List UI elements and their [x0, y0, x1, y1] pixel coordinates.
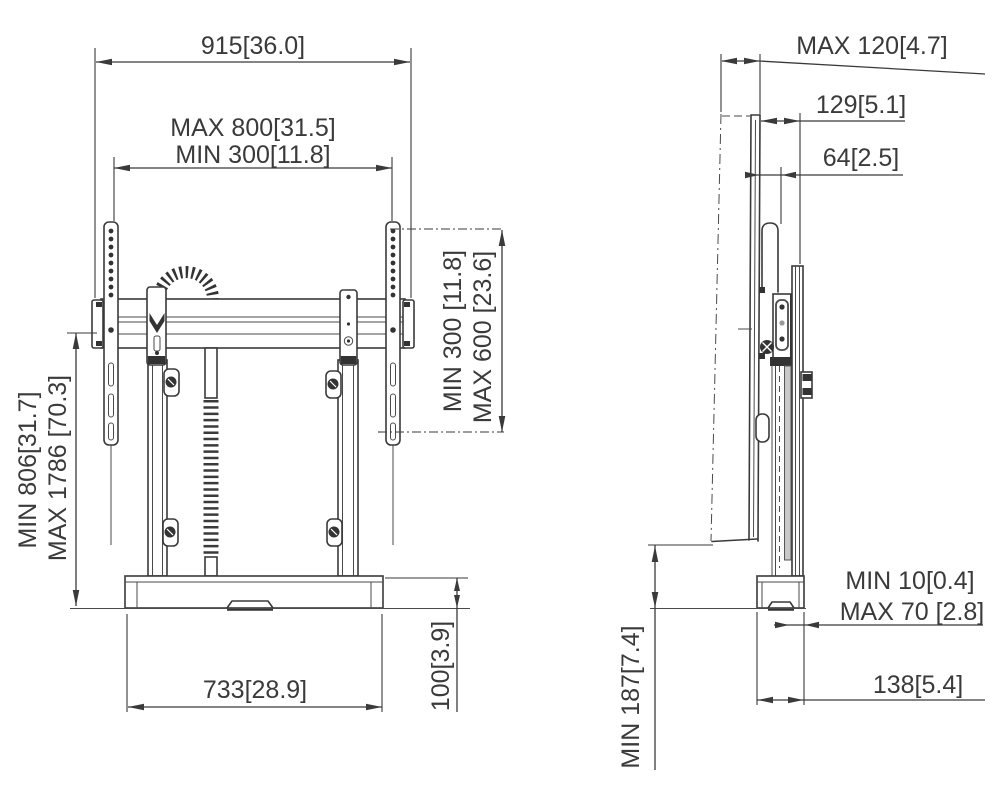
label-base-depth: 138[5.4] — [873, 671, 963, 699]
mount-tabs — [163, 369, 342, 546]
label-total-width: 915[36.0] — [201, 32, 305, 60]
cable-clamp — [801, 372, 812, 398]
label-wall-gap-max: MAX 70 [2.8] — [840, 598, 985, 626]
floor-base-side — [757, 576, 804, 609]
lift-spring — [205, 348, 217, 576]
vesa-rail-right — [386, 222, 400, 545]
coiled-cable — [159, 272, 213, 299]
side-view — [650, 114, 812, 609]
dim-vesa-width: MAX 800[31.5] MIN 300[11.8] — [114, 114, 392, 221]
dim-center-height: MIN 806[31.7] MAX 1786 [70.3] — [14, 333, 97, 606]
vesa-rail-left — [104, 222, 118, 545]
tv-tilted-outline — [711, 114, 721, 541]
drawing-page: 915[36.0] MAX 800[31.5] MIN 300[11.8] MI… — [0, 0, 1000, 800]
label-vesa-width-min: MIN 300[11.8] — [175, 141, 330, 169]
label-tilt-depth: MAX 120[4.7] — [796, 32, 947, 60]
floor-base — [125, 576, 383, 609]
dim-base-height: 100[3.9] — [385, 578, 468, 712]
dim-base-width: 733[28.9] — [127, 614, 382, 712]
dim-depth-64: 64[2.5] — [745, 144, 903, 224]
label-base-height: 100[3.9] — [427, 621, 455, 711]
dim-depth-129: 129[5.1] — [761, 91, 906, 264]
label-center-height-min: MIN 806[31.7] — [14, 391, 42, 548]
label-vesa-height-max: MAX 600 [23.6] — [469, 251, 497, 423]
technical-drawing: 915[36.0] MAX 800[31.5] MIN 300[11.8] MI… — [0, 0, 1000, 800]
label-vesa-height-min: MIN 300 [11.8] — [439, 250, 467, 412]
label-center-height-max: MAX 1786 [70.3] — [44, 375, 72, 561]
label-depth-64: 64[2.5] — [823, 144, 899, 172]
label-vesa-width-max: MAX 800[31.5] — [170, 114, 335, 142]
dim-floor-clearance: MIN 187[7.4] — [617, 545, 713, 770]
label-base-width: 733[28.9] — [203, 676, 307, 704]
label-wall-gap-min: MIN 10[0.4] — [845, 567, 974, 595]
front-view — [70, 222, 470, 609]
label-floor-clearance: MIN 187[7.4] — [617, 625, 645, 768]
label-depth-129: 129[5.1] — [816, 91, 906, 119]
right-clamp — [340, 290, 357, 365]
crossbar — [92, 299, 414, 348]
